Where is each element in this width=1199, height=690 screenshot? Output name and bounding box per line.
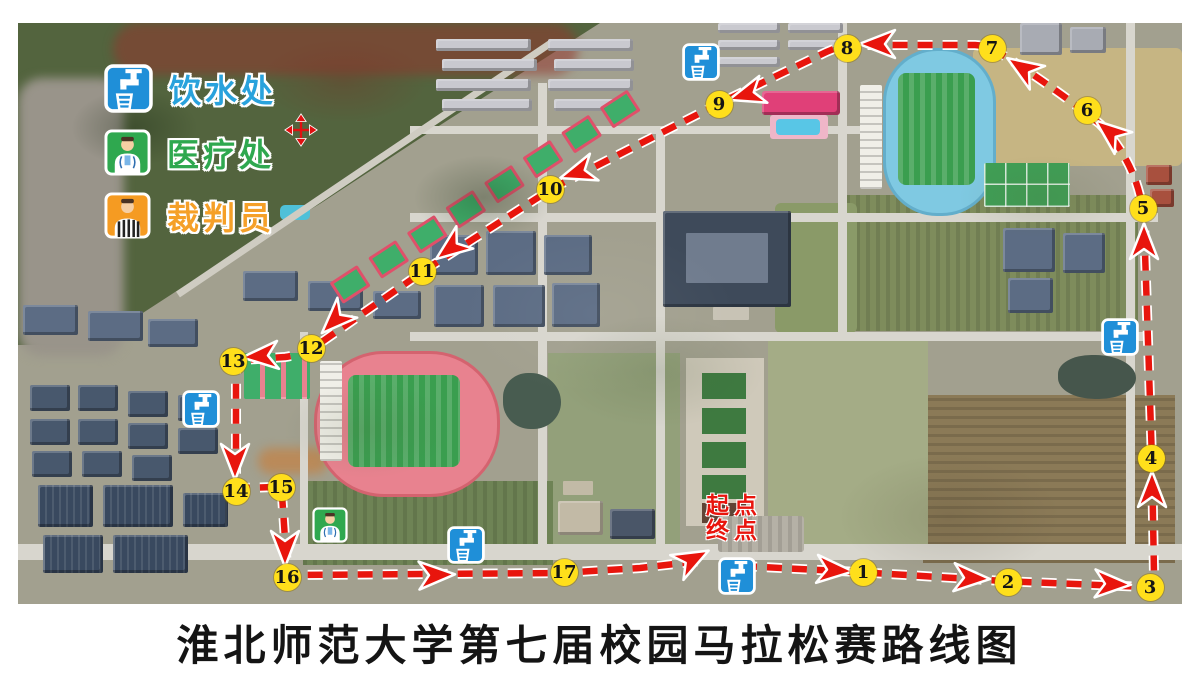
legend-item-water: 饮水处 [104,64,277,113]
map-feature-building [788,23,843,33]
start-label: 起点 [694,494,774,519]
map-feature-building [82,451,122,477]
map-feature-building [434,285,484,327]
map-feature-building [558,501,603,535]
map-feature-lawn-square [702,408,746,434]
finish-label: 终点 [694,519,774,544]
map-feature-farmland [923,395,1175,563]
route-marker-13: 13 [220,348,247,375]
route-marker-12: 12 [298,335,325,362]
map-feature-lawn-square [702,373,746,399]
map-feature-courtyard [686,233,768,283]
map-feature-grandstand [860,85,882,189]
map-feature-building [493,285,545,327]
medical-station-icon [312,507,348,543]
map-feature-building [1020,23,1062,55]
map-feature-building [32,451,72,477]
map-feature-building [548,39,633,51]
map-feature-building [718,57,780,67]
route-marker-3: 3 [1137,574,1164,601]
map-feature-building [373,291,421,319]
legend-item-medical: 医疗处 [104,129,275,176]
map-feature-pond [503,373,561,429]
map-feature-lawn-square [702,442,746,468]
map-feature-building [128,391,168,417]
map-feature-tennis [244,353,310,399]
map-feature-building [442,99,532,111]
route-marker-16: 16 [274,564,301,591]
start-finish-label: 起点 终点 [694,494,774,544]
map-feature-road [18,544,1182,560]
legend-label-referee: 裁判员 [167,193,275,239]
map-feature-building [103,485,173,527]
map-feature-road [656,126,665,546]
route-marker-5: 5 [1130,195,1157,222]
route-marker-7: 7 [979,35,1006,62]
map-feature-building [43,535,103,573]
map-feature-building [718,40,780,50]
marathon-route-map-page: 1234567891011121314151617 饮水处 医疗处 裁判员 起点… [0,0,1199,690]
route-marker-17: 17 [551,559,578,586]
map-feature-grandstand [320,361,342,461]
map-feature-building [436,79,531,91]
water-station-icon [718,557,756,595]
map-feature-stadium-field [898,73,975,185]
map-feature-building [243,271,298,301]
map-feature-building [718,23,780,33]
map-feature-stadium-field [348,375,460,467]
route-marker-2: 2 [995,569,1022,596]
water-station-icon [182,390,220,428]
map-feature-building [1003,228,1055,272]
map-feature-pond [1058,355,1136,399]
map-feature-building [1146,165,1172,185]
route-marker-4: 4 [1138,445,1165,472]
map-feature-courts [984,163,1070,207]
compass-icon [284,113,318,151]
legend-label-water: 饮水处 [169,66,277,112]
legend-label-medical: 医疗处 [167,130,275,176]
route-marker-15: 15 [268,474,295,501]
route-marker-1: 1 [850,559,877,586]
map-feature-road [1126,23,1135,546]
water-station-icon [447,526,485,564]
map-feature-building [88,311,143,341]
map-feature-building [23,305,78,335]
map-feature-building [1070,27,1106,53]
map-feature-building [486,231,536,275]
map-title: 淮北师范大学第七届校园马拉松赛路线图 [0,612,1199,673]
map-feature-building [183,493,228,527]
route-marker-14: 14 [223,478,250,505]
map-feature-building [544,235,592,275]
map-feature-building [563,481,593,495]
map-feature-road [410,332,1150,341]
legend-item-referee: 裁判员 [104,192,275,239]
water-station-icon [682,43,720,81]
map-feature-building [148,319,198,347]
route-marker-9: 9 [706,91,733,118]
map-feature-building [442,59,537,71]
map-feature-building [178,428,218,454]
map-feature-pool [776,119,820,135]
route-marker-6: 6 [1074,97,1101,124]
route-marker-8: 8 [834,35,861,62]
map-feature-building [548,79,633,91]
map-feature-building [78,385,118,411]
map-feature-building [552,283,600,327]
medical-station-icon [104,129,151,176]
map-feature-building [38,485,93,527]
map-feature-building [610,509,655,539]
map-feature-building [30,419,70,445]
map-feature-building [78,419,118,445]
map-feature-building [128,423,168,449]
map-feature-building [762,91,840,115]
map-feature-building [30,385,70,411]
map-feature-building [713,307,749,320]
map-feature-road [838,23,847,337]
map-feature-building [436,39,531,51]
map-feature-building [113,535,188,573]
map-feature-building [1008,278,1053,313]
map-feature-autumn [258,448,328,474]
map-feature-building [1063,233,1105,273]
map-feature-building [554,59,634,71]
route-marker-10: 10 [537,176,564,203]
referee-icon [104,192,151,239]
water-station-icon [104,64,153,113]
map-feature-building [132,455,172,481]
water-station-icon [1101,318,1139,356]
route-marker-11: 11 [409,258,436,285]
